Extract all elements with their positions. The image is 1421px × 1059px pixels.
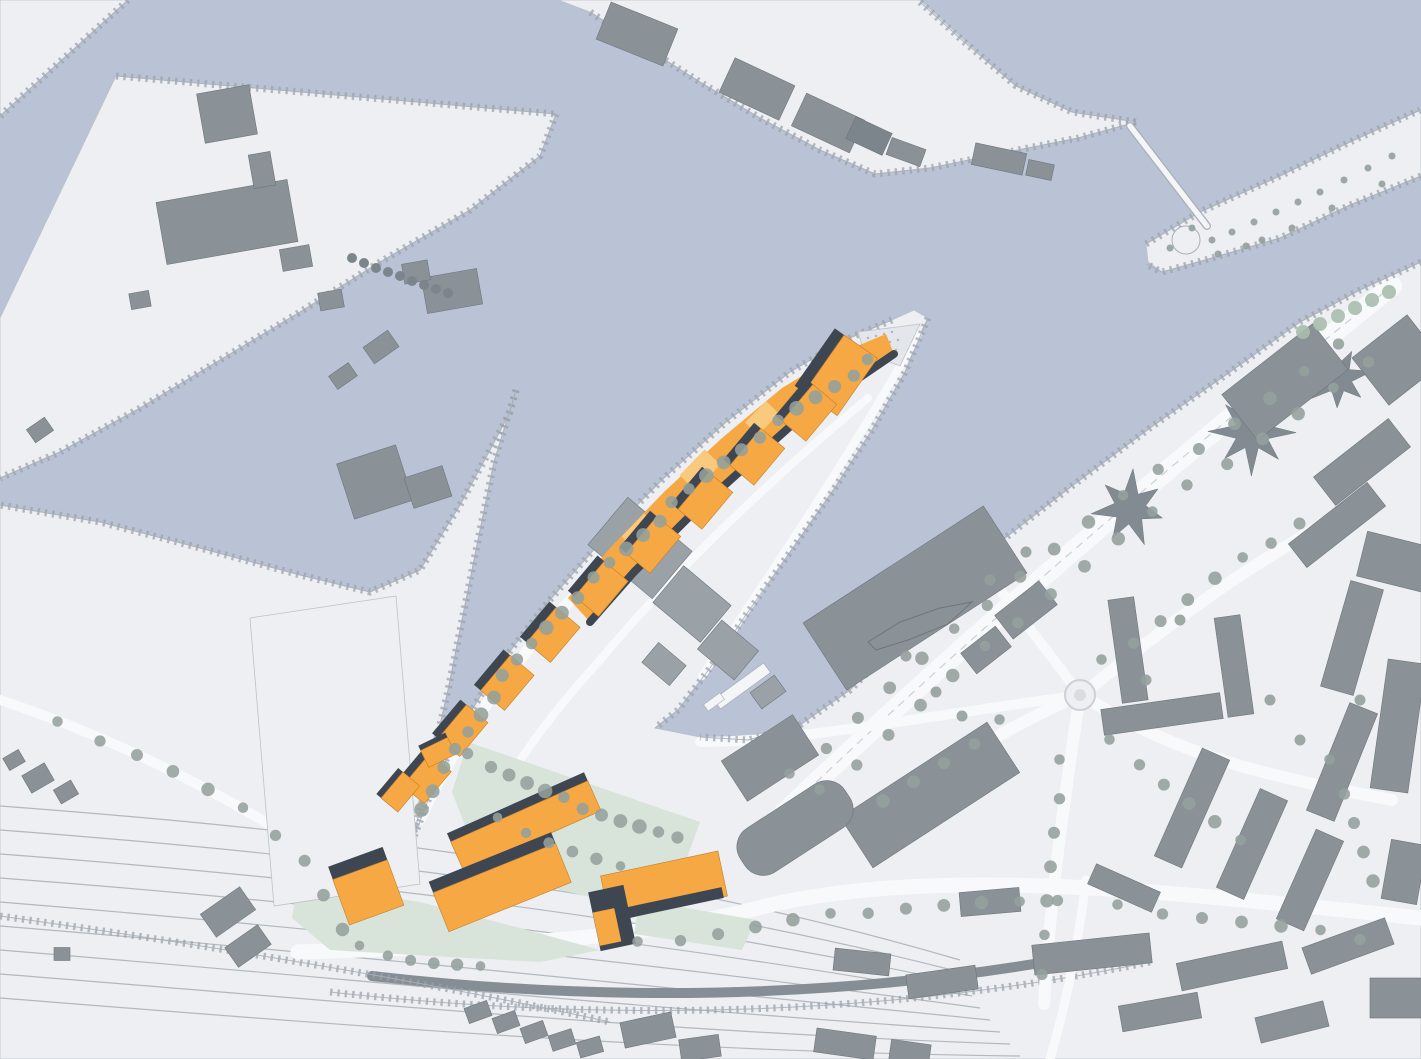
building — [54, 948, 70, 961]
building — [318, 289, 345, 311]
masterplan-site-plan — [0, 0, 1421, 1059]
island-plaza — [1172, 226, 1200, 254]
building — [197, 85, 258, 143]
building — [279, 245, 312, 272]
building — [1370, 978, 1421, 1018]
site-plan-canvas — [0, 0, 1421, 1059]
warehouse-large — [250, 596, 420, 906]
building — [959, 887, 1021, 916]
roundabout-island — [1074, 689, 1086, 701]
building — [129, 290, 151, 309]
